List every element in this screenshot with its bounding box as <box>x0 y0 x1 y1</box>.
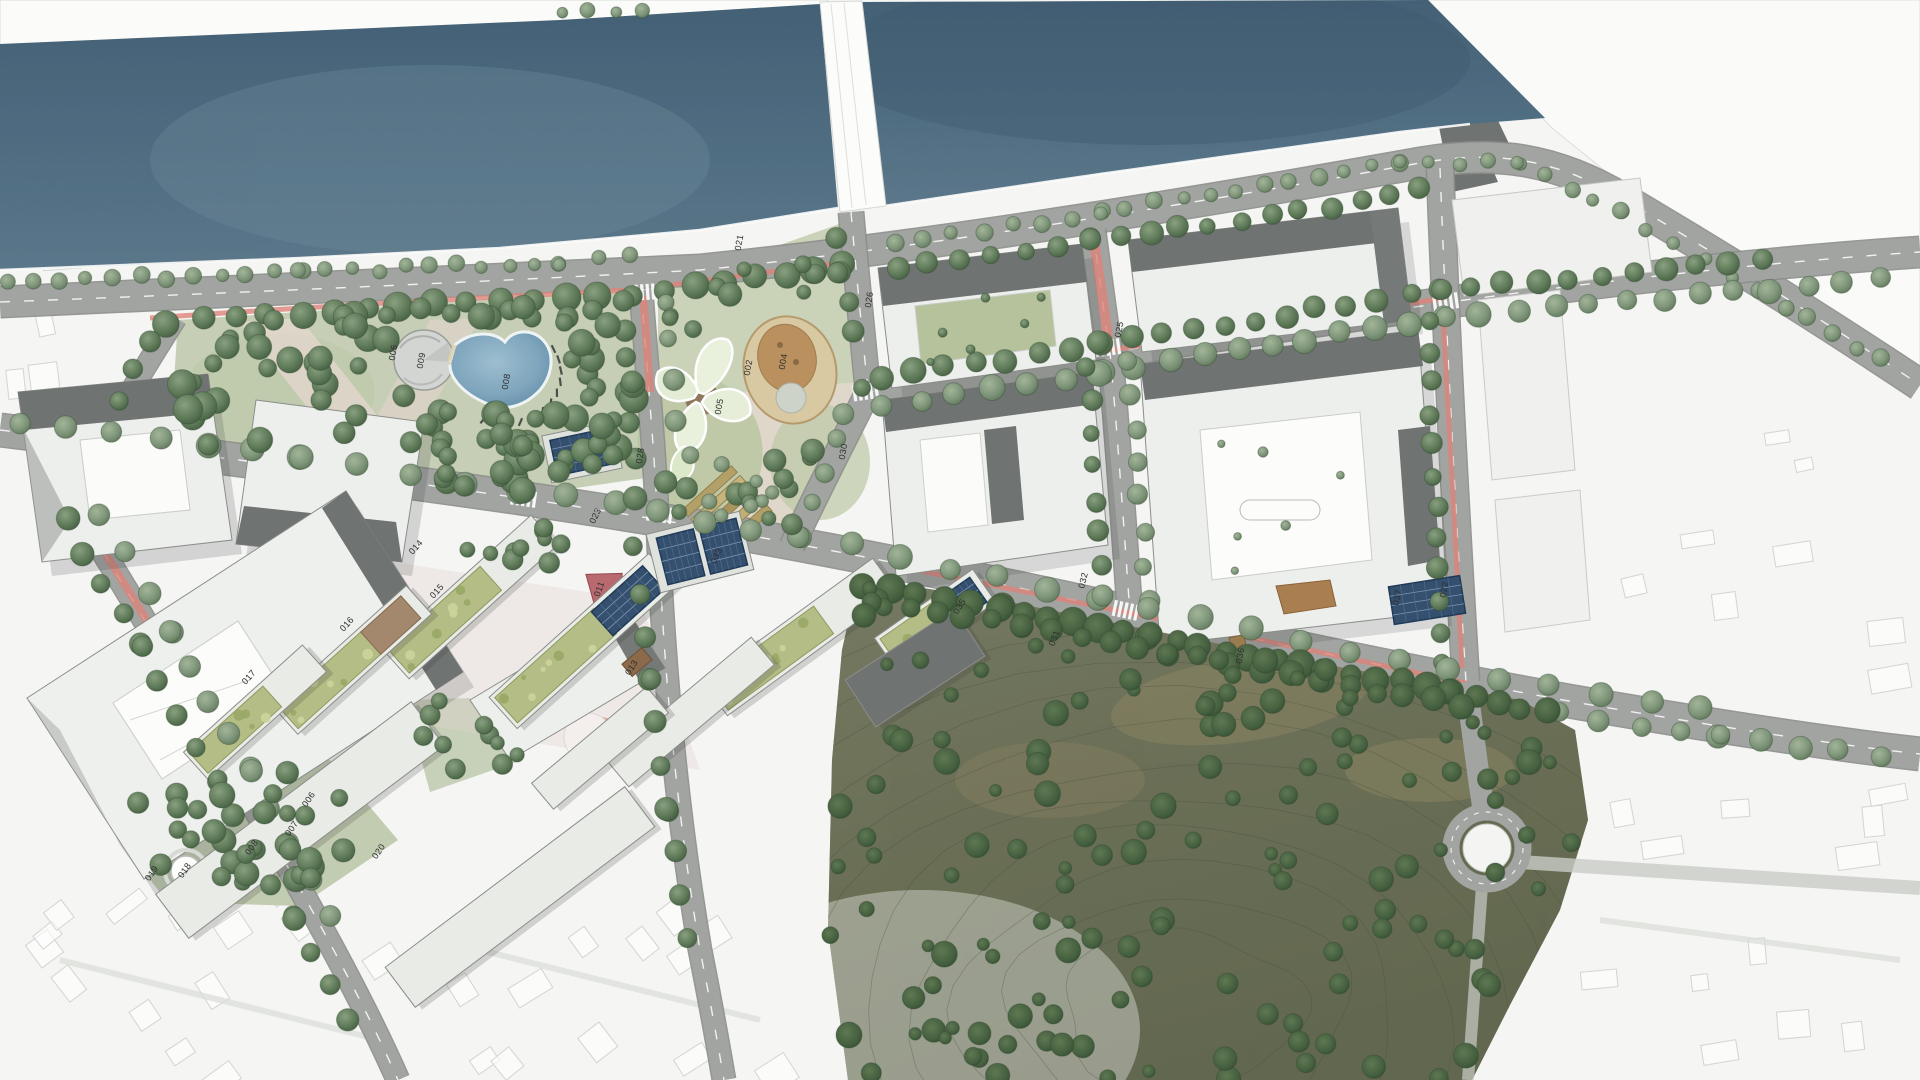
tree-icon <box>1246 313 1264 331</box>
tree-icon <box>933 731 950 748</box>
tree-icon <box>1397 312 1422 337</box>
tree-icon <box>1127 484 1147 504</box>
tree-icon <box>669 885 690 906</box>
tree-icon <box>110 392 128 410</box>
tree-icon <box>1084 456 1100 472</box>
tree-icon <box>965 833 990 858</box>
tree-icon <box>548 461 570 483</box>
tree-icon <box>534 519 553 538</box>
tree-icon <box>188 800 207 819</box>
tree-icon <box>1466 302 1491 327</box>
tree-icon <box>439 447 457 465</box>
tree-icon <box>454 476 475 497</box>
tree-icon <box>1151 323 1171 343</box>
tree-icon <box>853 379 870 396</box>
tree-icon <box>1689 282 1711 304</box>
tree-icon <box>833 404 854 425</box>
tree-icon <box>715 509 729 523</box>
tree-icon <box>1424 469 1441 486</box>
tree-icon <box>1026 752 1049 775</box>
tree-icon <box>912 392 932 412</box>
tree-icon <box>622 247 638 263</box>
tree-icon <box>78 271 91 284</box>
tree-icon <box>1778 300 1794 316</box>
tree-icon <box>794 256 811 273</box>
tree-icon <box>1798 308 1815 325</box>
tree-icon <box>1329 974 1349 994</box>
tree-icon <box>693 511 716 534</box>
tree-icon <box>1453 1043 1478 1068</box>
tree-icon <box>1655 258 1678 281</box>
tree-icon <box>1369 867 1394 892</box>
tree-icon <box>568 329 595 356</box>
tree-icon <box>1062 916 1075 929</box>
tree-icon <box>1410 915 1427 932</box>
tree-icon <box>1362 1055 1385 1078</box>
tree-icon <box>1461 278 1479 296</box>
tree-icon <box>510 748 524 762</box>
tree-icon <box>1486 863 1505 882</box>
tree-icon <box>912 652 929 669</box>
tree-icon <box>259 359 277 377</box>
tree-icon <box>1137 597 1159 619</box>
tree-icon <box>1535 698 1561 724</box>
tree-icon <box>475 716 493 734</box>
tree-icon <box>342 313 368 339</box>
tree-icon <box>209 782 235 808</box>
tree-icon <box>1071 1035 1094 1058</box>
tree-icon <box>922 940 934 952</box>
tree-icon <box>1276 306 1299 329</box>
tree-icon <box>1284 1014 1303 1033</box>
tree-icon <box>1799 276 1819 296</box>
tree-icon <box>859 901 874 916</box>
tree-icon <box>1753 249 1773 269</box>
tree-icon <box>1257 176 1273 192</box>
tree-icon <box>400 432 421 453</box>
tree-icon <box>179 656 201 678</box>
tree-icon <box>185 267 202 284</box>
tree-icon <box>1032 993 1045 1006</box>
tree-icon <box>676 477 698 499</box>
tree-icon <box>1421 312 1439 330</box>
tree-icon <box>663 369 685 391</box>
tree-icon <box>974 663 989 678</box>
tree-icon <box>301 943 320 962</box>
tree-icon <box>1850 342 1865 357</box>
tree-icon <box>1422 371 1442 391</box>
tree-icon <box>1120 669 1142 691</box>
tree-icon <box>1871 747 1891 767</box>
tree-icon <box>871 395 892 416</box>
tree-icon <box>870 366 894 390</box>
tree-icon <box>1296 1053 1315 1072</box>
tree-icon <box>1006 217 1021 232</box>
tree-icon <box>1440 730 1453 743</box>
tree-icon <box>797 285 811 299</box>
tree-icon <box>943 383 965 405</box>
tree-icon <box>1368 684 1387 703</box>
tree-icon <box>1137 523 1155 541</box>
tree-icon <box>737 262 752 277</box>
tree-icon <box>202 819 226 843</box>
tree-icon <box>1118 936 1140 958</box>
tree-icon <box>938 328 947 337</box>
tree-icon <box>714 457 729 472</box>
tree-icon <box>1241 706 1265 730</box>
tree-icon <box>744 499 758 513</box>
tree-icon <box>831 859 846 874</box>
tree-icon <box>678 929 697 948</box>
tree-icon <box>527 410 544 427</box>
tree-icon <box>1035 781 1061 807</box>
tree-icon <box>635 3 650 18</box>
tree-icon <box>750 475 763 488</box>
tree-icon <box>595 312 621 338</box>
tree-icon <box>1830 271 1852 293</box>
tree-icon <box>1199 755 1222 778</box>
tree-icon <box>1274 872 1292 890</box>
tree-icon <box>442 304 460 322</box>
tree-icon <box>1209 650 1229 670</box>
tree-icon <box>337 1009 359 1031</box>
tree-icon <box>1073 628 1091 646</box>
tree-icon <box>1100 631 1122 653</box>
tree-icon <box>1531 882 1545 896</box>
masterplan-svg: 0210260020040050300090080060280230330110… <box>0 0 1920 1080</box>
tree-icon <box>460 542 475 557</box>
tree-icon <box>10 413 31 434</box>
existing-building-outline <box>1841 1021 1864 1052</box>
tree-icon <box>1477 973 1501 997</box>
tree-icon <box>1092 845 1113 866</box>
tree-icon <box>623 537 642 556</box>
tree-icon <box>660 330 677 347</box>
existing-building-outline <box>1867 617 1906 646</box>
tree-icon <box>1121 839 1146 864</box>
tree-icon <box>240 760 262 782</box>
tree-icon <box>1612 202 1629 219</box>
masterplan-canvas: 0210260020040050300090080060280230330110… <box>0 0 1920 1080</box>
tree-icon <box>1092 585 1113 606</box>
tree-icon <box>861 1063 881 1080</box>
tree-icon <box>611 7 622 18</box>
tree-icon <box>1050 1033 1073 1056</box>
tree-icon <box>1252 648 1278 674</box>
tree-icon <box>944 226 957 239</box>
tree-icon <box>1056 938 1081 963</box>
tree-icon <box>1422 156 1434 168</box>
tree-icon <box>510 478 536 504</box>
tree-icon <box>1403 284 1421 302</box>
tree-icon <box>1087 520 1109 542</box>
tree-icon <box>277 347 303 373</box>
tree-icon <box>150 427 172 449</box>
tree-icon <box>504 259 517 272</box>
tree-icon <box>1478 726 1492 740</box>
tree-icon <box>1033 913 1050 930</box>
tree-icon <box>999 1035 1017 1053</box>
tree-icon <box>613 290 634 311</box>
tree-icon <box>1379 185 1399 205</box>
tree-icon <box>623 486 647 510</box>
tree-icon <box>1216 317 1235 336</box>
tree-icon <box>934 748 960 774</box>
tree-icon <box>1178 192 1190 204</box>
tree-icon <box>1363 316 1388 341</box>
tree-icon <box>702 494 717 509</box>
tree-icon <box>513 436 533 456</box>
tree-icon <box>782 514 803 535</box>
tree-icon <box>621 371 643 393</box>
tree-icon <box>182 831 199 848</box>
tree-icon <box>1199 218 1215 234</box>
tree-icon <box>133 266 150 283</box>
tree-icon <box>492 754 512 774</box>
tree-icon <box>123 359 143 379</box>
tree-icon <box>166 705 187 726</box>
tree-icon <box>1508 300 1530 322</box>
tree-icon <box>927 602 948 623</box>
tree-icon <box>1335 296 1355 316</box>
tree-icon <box>276 761 299 784</box>
tree-icon <box>1393 155 1406 168</box>
tree-icon <box>641 669 661 689</box>
tree-icon <box>1402 773 1416 787</box>
tree-icon <box>964 1047 982 1065</box>
tree-icon <box>1128 453 1147 472</box>
tree-icon <box>332 839 355 862</box>
tree-icon <box>350 358 367 375</box>
tree-icon <box>1119 384 1140 405</box>
tree-icon <box>159 620 181 642</box>
tree-icon <box>168 370 197 399</box>
tree-icon <box>589 413 615 439</box>
tree-icon <box>320 905 341 926</box>
tree-icon <box>226 306 247 327</box>
tree-icon <box>890 729 913 752</box>
tree-icon <box>1044 1005 1063 1024</box>
tree-icon <box>511 295 535 319</box>
tree-icon <box>1466 716 1480 730</box>
tree-icon <box>927 358 935 366</box>
tree-icon <box>1395 855 1418 878</box>
tree-icon <box>916 251 938 273</box>
tree-icon <box>290 302 316 328</box>
tree-icon <box>888 544 913 569</box>
tree-icon <box>1166 215 1188 237</box>
tree-icon <box>1641 691 1664 714</box>
tree-icon <box>205 355 222 372</box>
tree-icon <box>939 1032 952 1045</box>
existing-building-outline <box>1777 1009 1811 1039</box>
tree-icon <box>197 691 219 713</box>
tree-icon <box>1587 710 1609 732</box>
tree-icon <box>483 546 498 561</box>
tree-icon <box>672 504 687 519</box>
existing-building-outline <box>1610 799 1635 828</box>
tree-icon <box>1337 754 1352 769</box>
tree-icon <box>1218 440 1226 448</box>
tree-icon <box>56 507 80 531</box>
tree-icon <box>1028 638 1043 653</box>
tree-icon <box>1112 991 1129 1008</box>
tree-icon <box>101 422 122 443</box>
tree-icon <box>421 257 438 274</box>
tree-icon <box>553 258 566 271</box>
tree-icon <box>198 434 219 455</box>
tree-icon <box>867 775 885 793</box>
tree-icon <box>490 423 512 445</box>
tree-icon <box>635 627 656 648</box>
tree-icon <box>1076 358 1095 377</box>
tree-icon <box>1087 493 1107 513</box>
tree-icon <box>583 454 602 473</box>
tree-icon <box>1434 843 1448 857</box>
tree-icon <box>993 350 1017 374</box>
tree-icon <box>1152 917 1170 935</box>
tree-icon <box>651 757 670 776</box>
tree-icon <box>977 938 989 950</box>
tree-icon <box>1080 229 1101 250</box>
tree-icon <box>1538 674 1559 695</box>
tree-icon <box>986 565 1008 587</box>
tree-icon <box>1229 185 1243 199</box>
tree-icon <box>1118 352 1137 371</box>
tree-icon <box>1194 342 1217 365</box>
tree-icon <box>1617 290 1636 309</box>
tree-icon <box>909 1028 922 1041</box>
tree-icon <box>1263 204 1283 224</box>
tree-icon <box>1212 712 1236 736</box>
tree-icon <box>1671 722 1690 741</box>
tree-icon <box>1487 690 1512 715</box>
tree-icon <box>1219 684 1237 702</box>
tree-icon <box>1490 271 1513 294</box>
tree-icon <box>1654 289 1676 311</box>
tree-icon <box>1083 425 1099 441</box>
tree-icon <box>1094 207 1108 221</box>
tree-icon <box>983 610 1002 629</box>
tree-icon <box>1872 349 1890 367</box>
tree-icon <box>857 828 876 847</box>
tree-icon <box>1035 577 1060 602</box>
tree-icon <box>1132 966 1153 987</box>
tree-icon <box>740 520 762 542</box>
tree-icon <box>654 471 677 494</box>
tree-icon <box>1228 337 1250 359</box>
tree-icon <box>552 535 570 553</box>
tree-icon <box>1586 194 1598 206</box>
tree-icon <box>1545 295 1567 317</box>
tree-icon <box>1757 279 1781 303</box>
tree-icon <box>852 603 876 627</box>
tree-icon <box>1224 667 1241 684</box>
tree-icon <box>216 269 229 282</box>
tree-icon <box>1288 200 1307 219</box>
tree-icon <box>985 949 1000 964</box>
tree-icon <box>1366 159 1378 171</box>
tree-icon <box>1061 650 1075 664</box>
tree-icon <box>976 224 993 241</box>
tree-icon <box>333 422 355 444</box>
tree-icon <box>1074 825 1096 847</box>
tree-icon <box>1505 770 1520 785</box>
tree-icon <box>1185 832 1201 848</box>
tree-icon <box>1336 471 1344 479</box>
tree-icon <box>1015 373 1037 395</box>
tree-icon <box>1543 756 1556 769</box>
tree-icon <box>1667 237 1680 250</box>
tree-icon <box>1225 791 1240 806</box>
tree-icon <box>887 234 905 252</box>
tree-icon <box>1723 280 1743 300</box>
tree-icon <box>437 464 455 482</box>
tree-icon <box>416 414 437 435</box>
tree-icon <box>801 439 825 463</box>
tree-icon <box>1342 690 1358 706</box>
tree-icon <box>1789 736 1813 760</box>
tree-icon <box>1517 750 1542 775</box>
tree-icon <box>836 1022 862 1048</box>
tree-icon <box>1365 289 1388 312</box>
tree-icon <box>1421 432 1442 453</box>
tree-icon <box>1639 223 1653 237</box>
tree-icon <box>1126 637 1149 660</box>
tree-icon <box>139 331 160 352</box>
tree-icon <box>1279 786 1297 804</box>
tree-icon <box>840 293 859 312</box>
tree-icon <box>1145 192 1162 209</box>
tree-icon <box>346 262 359 275</box>
tree-icon <box>1231 567 1239 575</box>
tree-icon <box>1477 769 1498 790</box>
existing-building-outline <box>1580 969 1617 990</box>
tree-icon <box>1329 321 1351 343</box>
tree-icon <box>268 264 282 278</box>
tree-icon <box>1827 739 1848 760</box>
tree-icon <box>1260 689 1285 714</box>
tree-icon <box>1871 268 1891 288</box>
tree-icon <box>0 274 15 289</box>
tree-icon <box>173 395 203 425</box>
tree-icon <box>1427 528 1446 547</box>
tree-icon <box>646 499 669 522</box>
tree-icon <box>982 246 999 263</box>
tree-icon <box>804 494 820 510</box>
tree-icon <box>685 321 702 338</box>
tree-icon <box>1337 165 1350 178</box>
tree-icon <box>557 7 568 18</box>
tree-icon <box>264 785 282 803</box>
tree-icon <box>1029 342 1050 363</box>
tree-icon <box>215 335 239 359</box>
tree-icon <box>1420 406 1439 425</box>
tree-icon <box>70 542 94 566</box>
tree-icon <box>931 941 957 967</box>
tree-icon <box>1037 293 1045 301</box>
tree-icon <box>828 794 852 818</box>
tree-icon <box>1518 827 1535 844</box>
tree-icon <box>644 710 666 732</box>
tree-icon <box>253 801 276 824</box>
tree-icon <box>25 273 41 289</box>
tree-icon <box>1188 605 1213 630</box>
tree-icon <box>1065 212 1081 228</box>
tree-icon <box>1128 421 1146 439</box>
tree-icon <box>410 298 431 319</box>
tree-icon <box>580 388 598 406</box>
